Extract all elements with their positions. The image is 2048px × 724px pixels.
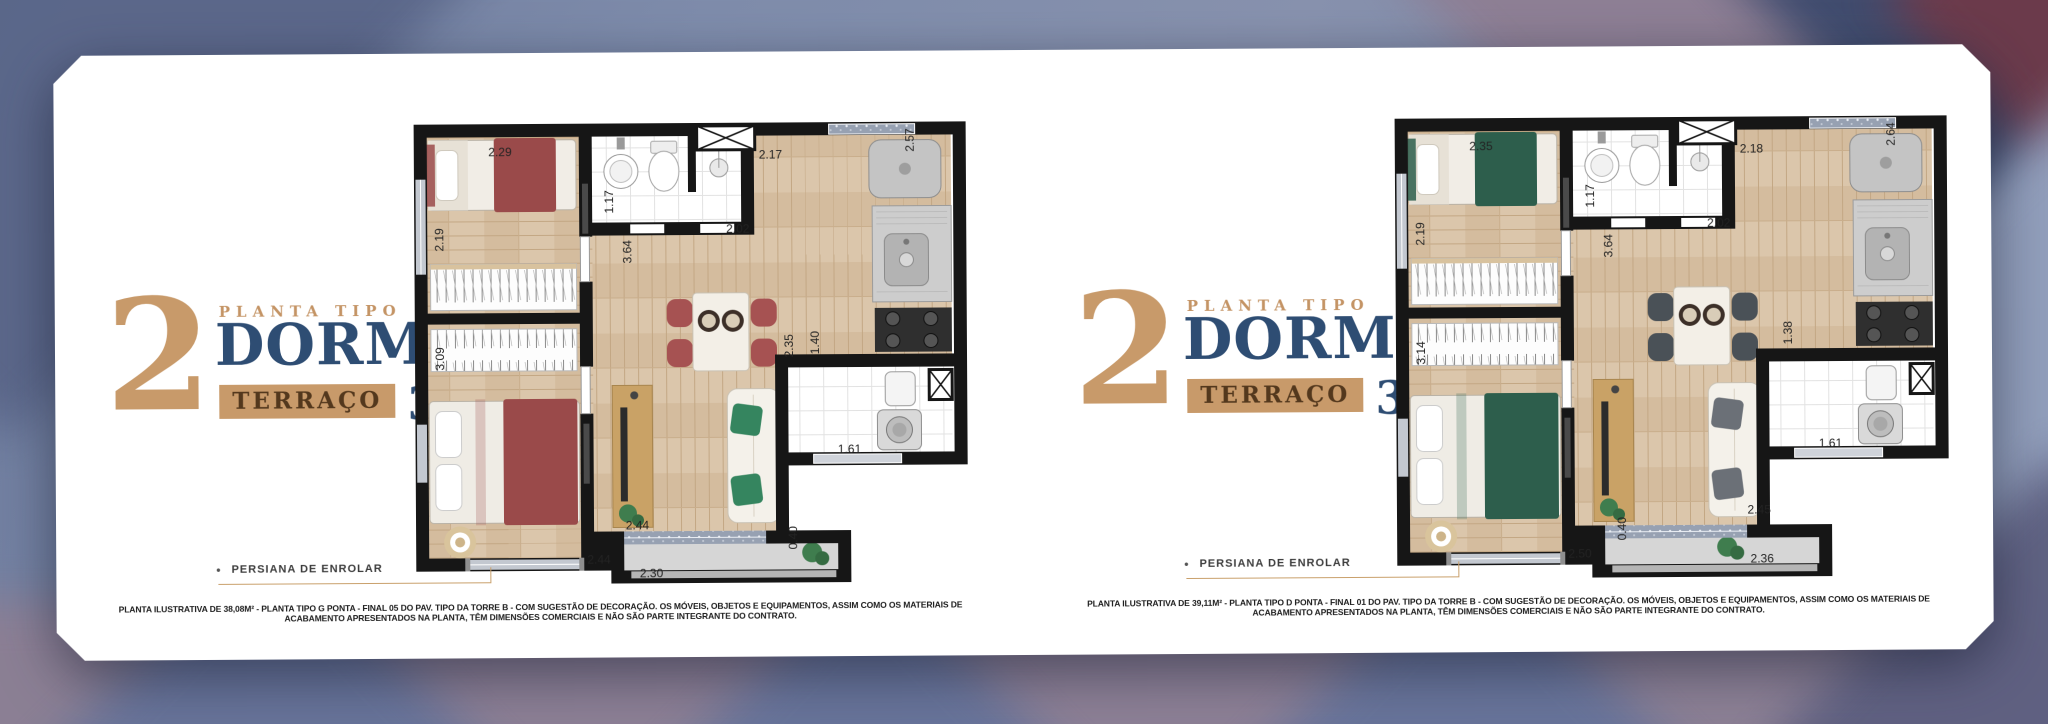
dimension-label: 2.35 bbox=[782, 334, 796, 357]
dimension-label: 1.17 bbox=[602, 190, 616, 213]
dimension-label: 2.02 bbox=[1707, 216, 1730, 230]
dimension-label: 1.40 bbox=[808, 331, 822, 354]
dimension-label: 0.40 bbox=[786, 526, 800, 549]
disclaimer-text: PLANTA ILUSTRATIVA DE 38,08M² - PLANTA T… bbox=[102, 599, 980, 624]
dimension-label: 2.29 bbox=[488, 145, 511, 159]
title-block: 2 PLANTA TIPO DORMS TERRAÇO 38m2 bbox=[105, 300, 436, 432]
dimension-label: 2.18 bbox=[1740, 142, 1763, 156]
dimension-label: 2.35 bbox=[1469, 139, 1492, 153]
dimension-label: 2.64 bbox=[1883, 122, 1897, 145]
title-block: 2 PLANTA TIPO DORMS TERRAÇO 39m2 bbox=[1073, 294, 1404, 426]
dimension-label: 2.45 bbox=[1747, 503, 1770, 517]
dimension-label: 2.44 bbox=[587, 552, 610, 566]
dimension-label: 3.14 bbox=[1414, 341, 1428, 364]
dimension-label: 1.61 bbox=[1819, 436, 1842, 450]
dimension-label: 2.44 bbox=[626, 518, 649, 532]
floorplan-panel-38m2: 2 PLANTA TIPO DORMS TERRAÇO 38m2 bbox=[53, 50, 1025, 661]
dimension-label: 1.17 bbox=[1583, 184, 1597, 207]
dorms-count: 2 bbox=[1073, 289, 1181, 412]
dorms-count: 2 bbox=[105, 295, 213, 418]
dimension-labels: 2.352.182.642.191.172.023.643.141.381.61… bbox=[1395, 115, 1950, 578]
dimension-label: 2.50 bbox=[1568, 546, 1591, 560]
background: 2 PLANTA TIPO DORMS TERRAÇO 38m2 bbox=[0, 0, 2048, 724]
floor-plan-38m2: 2.292.172.572.191.172.023.643.092.351.40… bbox=[414, 121, 969, 584]
brochure-card: 2 PLANTA TIPO DORMS TERRAÇO 38m2 bbox=[53, 44, 1994, 661]
floorplan-panel-39m2: 2 PLANTA TIPO DORMS TERRAÇO 39m2 bbox=[1021, 44, 1993, 655]
dimension-label: 3.64 bbox=[620, 240, 634, 263]
dimension-label: 2.02 bbox=[726, 222, 749, 236]
terraco-badge: TERRAÇO bbox=[219, 384, 395, 419]
floor-plan-39m2: 2.352.182.642.191.172.023.643.141.381.61… bbox=[1395, 115, 1950, 578]
dimension-label: 2.30 bbox=[640, 566, 663, 580]
dimension-label: 1.61 bbox=[838, 442, 861, 456]
dimension-label: 0.40 bbox=[1615, 517, 1629, 540]
dimension-labels: 2.292.172.572.191.172.023.643.092.351.40… bbox=[414, 121, 969, 584]
dimension-label: 2.19 bbox=[432, 228, 446, 251]
legend-leader-line bbox=[218, 567, 491, 585]
dimension-label: 2.17 bbox=[759, 148, 782, 162]
disclaimer-text: PLANTA ILUSTRATIVA DE 39,11M² - PLANTA T… bbox=[1070, 593, 1948, 618]
dimension-label: 2.19 bbox=[1413, 222, 1427, 245]
dimension-label: 2.36 bbox=[1750, 551, 1773, 565]
terraco-badge: TERRAÇO bbox=[1187, 378, 1363, 413]
dimension-label: 3.64 bbox=[1601, 234, 1615, 257]
dimension-label: 3.09 bbox=[433, 347, 447, 370]
legend-leader-line bbox=[1186, 561, 1459, 579]
dimension-label: 2.57 bbox=[902, 128, 916, 151]
dimension-label: 1.38 bbox=[1781, 321, 1795, 344]
